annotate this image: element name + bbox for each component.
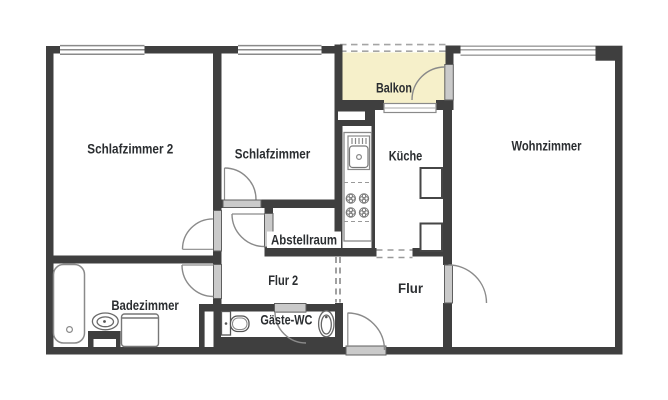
svg-text:Gäste-WC: Gäste-WC xyxy=(260,312,312,328)
svg-text:Schlafzimmer 2: Schlafzimmer 2 xyxy=(87,141,173,157)
svg-text:Flur: Flur xyxy=(398,280,424,296)
svg-text:Küche: Küche xyxy=(389,148,423,164)
svg-text:Badezimmer: Badezimmer xyxy=(111,297,179,313)
svg-text:Flur 2: Flur 2 xyxy=(268,272,298,288)
svg-text:Balkon: Balkon xyxy=(376,80,412,96)
svg-text:Schlafzimmer: Schlafzimmer xyxy=(235,146,311,162)
svg-text:Abstellraum: Abstellraum xyxy=(271,232,337,248)
svg-text:Wohnzimmer: Wohnzimmer xyxy=(512,138,582,154)
